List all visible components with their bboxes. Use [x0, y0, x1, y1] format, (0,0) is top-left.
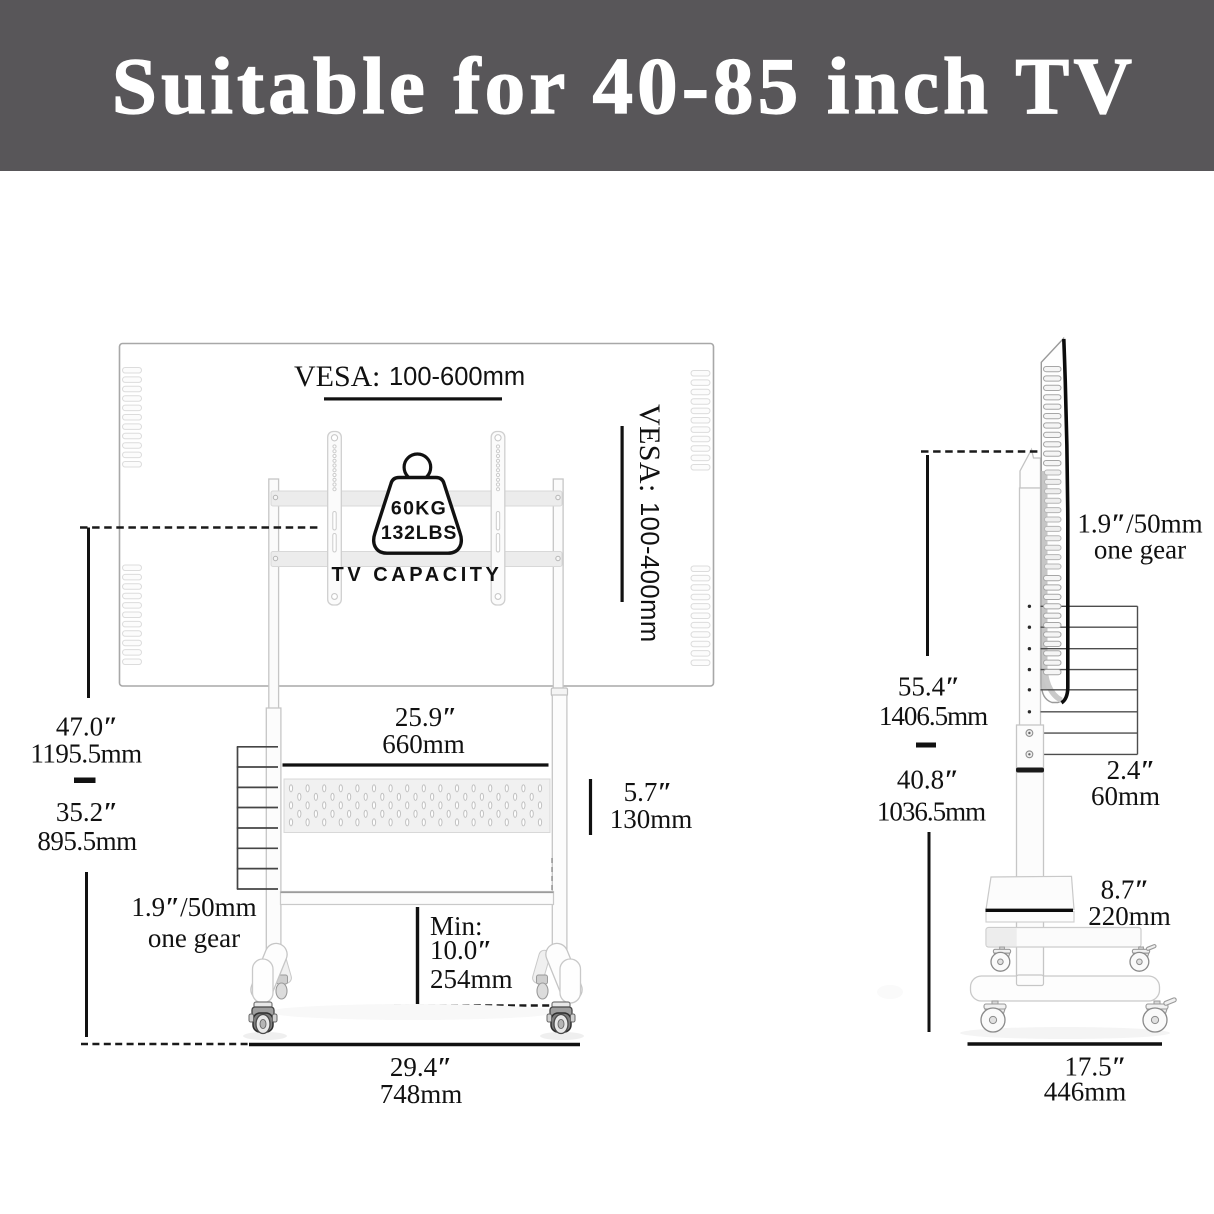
svg-text:660mm: 660mm: [382, 729, 465, 759]
svg-text:1195.5mm: 1195.5mm: [30, 739, 142, 769]
svg-text:40.8″: 40.8″: [897, 765, 959, 795]
svg-text:60mm: 60mm: [1091, 781, 1160, 811]
svg-text:35.2″: 35.2″: [56, 797, 118, 827]
svg-text:10.0″: 10.0″: [430, 935, 492, 965]
svg-text:VESA: VESA: [633, 404, 666, 484]
svg-text:47.0″: 47.0″: [56, 712, 118, 742]
svg-text:1.9″/50mm: 1.9″/50mm: [131, 892, 256, 922]
svg-text:Suitable for 40-85 inch TV: Suitable for 40-85 inch TV: [112, 41, 1136, 131]
svg-text:VESA: VESA: [294, 360, 373, 393]
svg-text:one gear: one gear: [148, 923, 240, 953]
svg-text:TV CAPACITY: TV CAPACITY: [332, 564, 503, 586]
svg-text:446mm: 446mm: [1044, 1077, 1127, 1107]
svg-text:130mm: 130mm: [610, 804, 693, 834]
svg-text:55.4″: 55.4″: [898, 672, 960, 702]
svg-text:1036.5mm: 1036.5mm: [877, 797, 986, 827]
svg-text:220mm: 220mm: [1088, 901, 1171, 931]
svg-text::: :: [372, 360, 380, 393]
svg-text:one gear: one gear: [1094, 535, 1186, 565]
svg-text:29.4″: 29.4″: [390, 1052, 452, 1082]
svg-text:5.7″: 5.7″: [624, 777, 673, 807]
svg-text:132LBS: 132LBS: [381, 522, 457, 544]
svg-text:100-600mm: 100-600mm: [389, 363, 525, 391]
svg-text:1406.5mm: 1406.5mm: [879, 701, 988, 731]
svg-text::: :: [633, 484, 666, 492]
svg-text:8.7″: 8.7″: [1101, 875, 1150, 905]
svg-text:895.5mm: 895.5mm: [37, 826, 137, 856]
svg-text:25.9″: 25.9″: [395, 702, 457, 732]
svg-text:254mm: 254mm: [430, 964, 513, 994]
svg-text:100-400mm: 100-400mm: [635, 502, 663, 643]
svg-text:60KG: 60KG: [391, 498, 447, 520]
svg-text:748mm: 748mm: [380, 1079, 463, 1109]
